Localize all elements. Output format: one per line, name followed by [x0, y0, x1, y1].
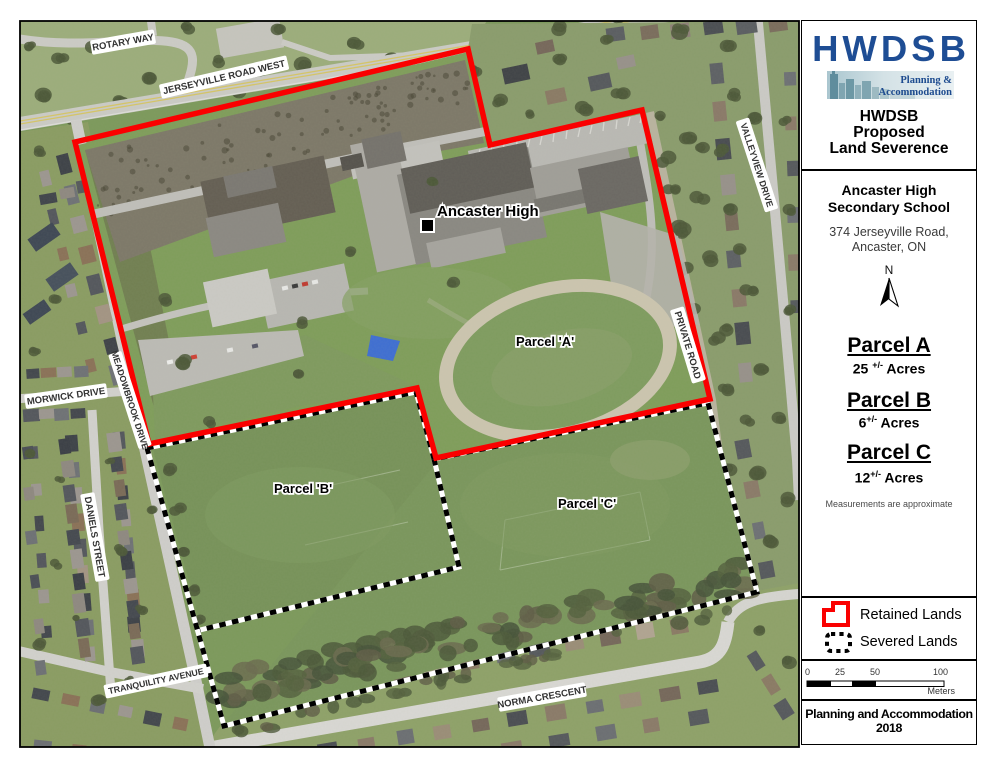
svg-text:Parcel 'A': Parcel 'A'	[516, 334, 574, 349]
svg-text:Retained Lands: Retained Lands	[860, 607, 962, 623]
svg-text:0: 0	[805, 667, 810, 677]
svg-text:Meters: Meters	[927, 686, 955, 696]
svg-text:Parcel 'C': Parcel 'C'	[558, 496, 616, 511]
svg-text:25: 25	[835, 667, 845, 677]
svg-text:50: 50	[870, 667, 880, 677]
svg-text:100: 100	[933, 667, 948, 677]
svg-text:Severed Lands: Severed Lands	[860, 634, 958, 650]
svg-text:N: N	[885, 263, 894, 277]
svg-text:Planning &: Planning &	[900, 75, 952, 86]
svg-text:Ancaster High: Ancaster High	[437, 203, 539, 220]
svg-text:Parcel 'B': Parcel 'B'	[274, 481, 332, 496]
svg-text:Accommodation: Accommodation	[879, 87, 953, 98]
